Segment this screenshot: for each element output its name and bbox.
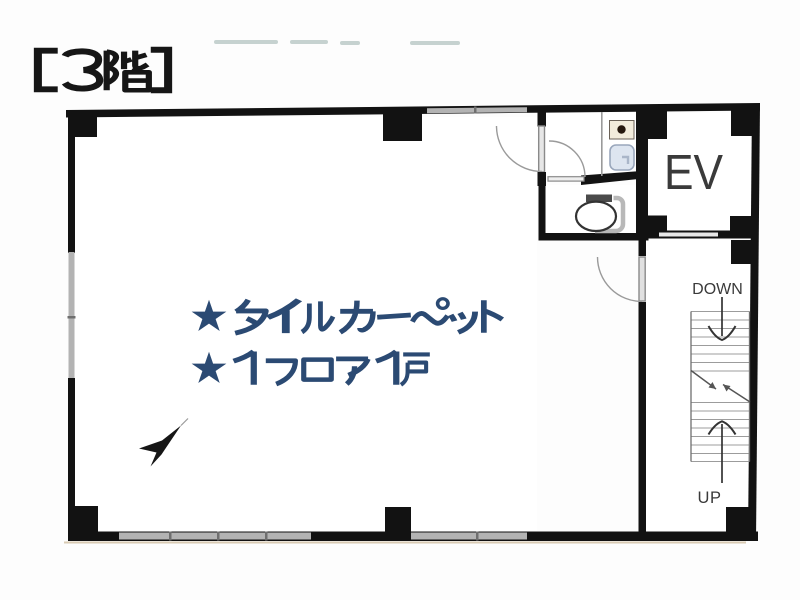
svg-text:DOWN: DOWN — [692, 281, 743, 298]
svg-text:UP: UP — [698, 489, 722, 507]
svg-text:EV: EV — [664, 146, 723, 200]
